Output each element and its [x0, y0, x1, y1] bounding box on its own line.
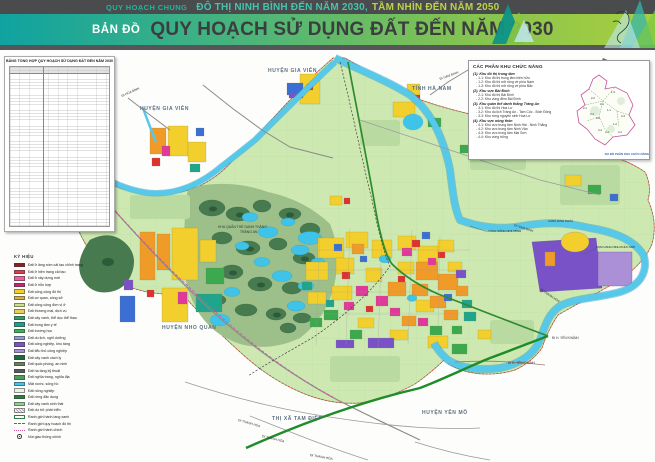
minimap-zone-id: 4-4	[598, 128, 602, 132]
legend-item: Đất quốc phòng, an ninh	[14, 361, 116, 368]
legend-item: Mặt nước, sông hồ	[14, 381, 116, 388]
legend-item: Đất ở làng xóm cải tạo chỉnh trang	[14, 262, 116, 269]
legend-item-label: Đất cây xanh sinh thái	[28, 402, 63, 406]
legend-swatch-fill	[14, 388, 25, 392]
zone-item: - 1-3: Khu đô thị mở rộng về phía Bắc	[476, 84, 567, 88]
label-tinh-ha-nam: TỈNH HÀ NAM	[412, 85, 452, 92]
zones-title: CÁC PHÂN KHU CHỨC NĂNG	[473, 64, 645, 69]
minimap-zone-id: 3-2	[596, 116, 600, 120]
legend-item-label: Đất công cộng đô thị	[28, 290, 61, 294]
legend-item: Đất cây xanh sinh thái	[14, 400, 116, 407]
legend-swatch-fill	[14, 382, 25, 386]
legend-item-label: Đất cơ quan, công sở	[28, 296, 63, 300]
legend-item: Ranh giới hành lang xanh	[14, 414, 116, 421]
legend-item: Đất ở hiện trạng cải tạo	[14, 269, 116, 276]
minimap-zone-id: 4-3	[621, 114, 625, 118]
legend-swatch-fill	[14, 362, 25, 366]
zone-item: - 3-3: Khu rừng nguyên sinh Hoa Lư	[476, 114, 567, 118]
legend-item: Đất ở hỗn hợp	[14, 282, 116, 289]
legend-swatch-fill	[14, 395, 25, 399]
label-di-thanh-hoa-3: ĐI THANH HÓA	[310, 452, 334, 461]
landuse-table-grid	[9, 66, 110, 227]
legend-item-label: Đất quốc phòng, an ninh	[28, 362, 67, 366]
legend-item: Đất trung tâm y tế	[14, 321, 116, 328]
label-di-thanh-hoa-2: ĐI THANH HÓA	[262, 433, 286, 444]
legend-swatch-dot	[14, 430, 25, 431]
zones-minimap-caption: SƠ ĐỒ PHÂN KHU CHỨC NĂNG	[567, 152, 649, 156]
label-cang-ninh-phuc: CẢNG NINH PHÚC	[548, 218, 573, 223]
legend-item-label: Đất hạ tầng kỹ thuật	[28, 369, 60, 373]
legend-item-label: Đất tiểu thủ công nghiệp	[28, 349, 67, 353]
legend-item: Đất cây xanh, thể dục thể thao	[14, 315, 116, 322]
minimap-zone-id: 4-2	[605, 130, 609, 134]
urban-parcels-gian-khau	[150, 126, 206, 172]
zones-minimap: 1-11-21-32-12-23-13-23-34-14-24-34-4	[569, 71, 649, 151]
legend-swatch-fill	[14, 322, 25, 326]
label-di-yen-khanh-1: ĐI H. YÊN KHÁNH	[552, 335, 579, 340]
corner-triangles-icon	[604, 0, 655, 48]
legend-item: Đất công cộng đơn vị ở	[14, 302, 116, 309]
legend-swatch-fill	[14, 329, 25, 333]
legend-item-label: Ranh giới hành chính	[28, 428, 62, 432]
legend-swatch-fill	[14, 296, 25, 300]
legend-item-label: Đất ở hiện trạng cải tạo	[28, 270, 66, 274]
legend-item-label: Đất thương mại, dịch vụ	[28, 309, 67, 313]
legend-item-label: Đất nông nghiệp	[28, 389, 54, 393]
legend-swatch-fill	[14, 270, 25, 274]
legend-item-label: Đất ở xây dựng mới	[28, 276, 60, 280]
legend-item: Đất cây xanh cách ly	[14, 354, 116, 361]
legend-item-label: Đất dự trữ phát triển	[28, 408, 61, 412]
legend-swatch-fill	[14, 342, 25, 346]
legend-item: Đất nông nghiệp	[14, 387, 116, 394]
minimap-zone-id: 3-1	[600, 102, 604, 106]
legend-swatch-junction	[14, 434, 25, 439]
legend-swatch-fill	[14, 263, 25, 267]
legend-item: Đất thương mại, dịch vụ	[14, 308, 116, 315]
legend-item: Đất cơ quan, công sở	[14, 295, 116, 302]
minimap-zone-id: 2-2	[591, 96, 595, 100]
label-cang-song-ninh-binh: CẢNG SÔNG NINH BÌNH	[488, 228, 521, 233]
minimap-zone-id: 2-1	[583, 106, 587, 110]
legend-title: KÝ HIỆU	[14, 254, 116, 259]
legend-item-label: Đất cây xanh cách ly	[28, 356, 61, 360]
legend-item: Đất ở xây dựng mới	[14, 275, 116, 282]
legend-swatch-fill	[14, 369, 25, 373]
legend-swatch-fill	[14, 316, 25, 320]
minimap-zone-id: 1-2	[613, 122, 617, 126]
map-sheet: QUY HOẠCH CHUNG ĐÔ THỊ NINH BÌNH ĐẾN NĂM…	[0, 0, 655, 462]
legend-item-label: Mặt nước, sông hồ	[28, 382, 58, 386]
legend-item-label: Đất trung tâm y tế	[28, 323, 57, 327]
legend-item: Đất tiểu thủ công nghiệp	[14, 348, 116, 355]
legend-item: Đất rừng đặc dụng	[14, 394, 116, 401]
map-legend: KÝ HIỆU Đất ở làng xóm cải tạo chỉnh tra…	[14, 254, 116, 440]
minimap-zone-id: 1-3	[611, 90, 615, 94]
legend-item-label: Đất trường học	[28, 329, 52, 333]
functional-zones-box: CÁC PHÂN KHU CHỨC NĂNG (1). Khu đô thị t…	[468, 60, 650, 160]
legend-item-label: Đất nghĩa trang, nghĩa địa	[28, 375, 70, 379]
legend-swatch-fill	[14, 375, 25, 379]
legend-item-label: Đất ở hỗn hợp	[28, 283, 51, 287]
legend-items: Đất ở làng xóm cải tạo chỉnh trangĐất ở …	[14, 262, 116, 440]
minimap-outline	[577, 75, 635, 145]
brand-logo	[480, 0, 655, 50]
legend-item: Ranh giới quy hoạch đô thị	[14, 420, 116, 427]
label-huyen-gia-vien-north: HUYỆN GIA VIỄN	[268, 66, 317, 74]
legend-item: Đất dự trữ phát triển	[14, 407, 116, 414]
legend-item-label: Ranh giới hành lang xanh	[28, 415, 69, 419]
legend-item: Đất hạ tầng kỹ thuật	[14, 368, 116, 375]
legend-swatch-fill	[14, 276, 25, 280]
legend-item: Nút giao thông chính	[14, 433, 116, 440]
landuse-table-title: BẢNG TỔNG HỢP QUY HOẠCH SỬ DỤNG ĐẤT ĐẾN …	[5, 59, 114, 63]
label-di-hoa-binh: ĐI HÒA BÌNH	[120, 85, 140, 98]
legend-item-label: Đất công nghiệp, kho tàng	[28, 342, 70, 346]
legend-swatch-fill	[14, 355, 25, 359]
label-trang-an-line1: KHU QUẦN THỂ DANH THẮNG	[218, 224, 267, 229]
legend-item: Đất du lịch, nghỉ dưỡng	[14, 335, 116, 342]
label-cum-cang-ninh-phuc-moi: CỤM CẢNG NINH PHÚC MỚI	[596, 244, 635, 249]
legend-item-label: Ranh giới quy hoạch đô thị	[28, 422, 71, 426]
legend-item: Đất nghĩa trang, nghĩa địa	[14, 374, 116, 381]
legend-swatch-outline	[14, 415, 25, 419]
minimap-zone-id: 3-3	[590, 112, 594, 116]
header-title-part1: ĐÔ THỊ NINH BÌNH ĐẾN NĂM 2030,	[196, 2, 368, 13]
zone-item: - 2-2: Khu vùng đệm Bái Đính	[476, 97, 567, 101]
minimap-zone-id: 1-1	[607, 108, 611, 112]
legend-item: Đất trường học	[14, 328, 116, 335]
legend-item-label: Đất cây xanh, thể dục thể thao	[28, 316, 77, 320]
legend-swatch-fill	[14, 402, 25, 406]
zone-item: - 4-4: Khu vùng trũng	[476, 135, 567, 139]
legend-item-label: Nút giao thông chính	[28, 435, 61, 439]
plan-kicker: QUY HOẠCH CHUNG	[106, 3, 187, 12]
legend-swatch-fill	[14, 303, 25, 307]
legend-item: Đất công nghiệp, kho tàng	[14, 341, 116, 348]
label-di-nam-dinh-1: ĐI NAM ĐỊNH	[439, 70, 460, 81]
legend-item: Ranh giới hành chính	[14, 427, 116, 434]
label-di-yen-khanh-2: ĐI H. YÊN KHÁNH	[508, 360, 535, 365]
minimap-zone-id: 4-1	[618, 130, 622, 134]
landuse-table-name-column	[10, 67, 44, 226]
legend-swatch-fill	[14, 309, 25, 313]
zones-list: (1). Khu đô thị trung tâm- 1-1: Khu đô t…	[473, 71, 567, 156]
legend-item-label: Đất ở làng xóm cải tạo chỉnh trang	[28, 263, 83, 267]
legend-item: Đất công cộng đô thị	[14, 288, 116, 295]
label-huyen-yen-mo: HUYỆN YÊN MÔ	[422, 408, 468, 416]
map-word: BẢN ĐỒ	[92, 24, 140, 36]
legend-item-label: Đất du lịch, nghỉ dưỡng	[28, 336, 66, 340]
legend-swatch-dash	[14, 423, 25, 424]
label-thi-xa-tam-diep: THỊ XÃ TAM ĐIỆP	[272, 414, 322, 422]
legend-swatch-hatch	[14, 408, 25, 412]
legend-swatch-fill	[14, 289, 25, 293]
label-huyen-nho-quan: HUYỆN NHO QUAN	[162, 323, 217, 331]
label-trang-an-line2: TRÀNG AN	[240, 230, 258, 234]
legend-swatch-fill	[14, 349, 25, 353]
legend-item-label: Đất rừng đặc dụng	[28, 395, 58, 399]
legend-swatch-fill	[14, 336, 25, 340]
legend-swatch-fill	[14, 283, 25, 287]
triangle-logo-icon	[492, 4, 534, 44]
landuse-summary-table: BẢNG TỔNG HỢP QUY HOẠCH SỬ DỤNG ĐẤT ĐẾN …	[4, 56, 115, 232]
label-huyen-gia-vien-west: HUYỆN GIA VIỄN	[140, 104, 189, 112]
legend-item-label: Đất công cộng đơn vị ở	[28, 303, 65, 307]
